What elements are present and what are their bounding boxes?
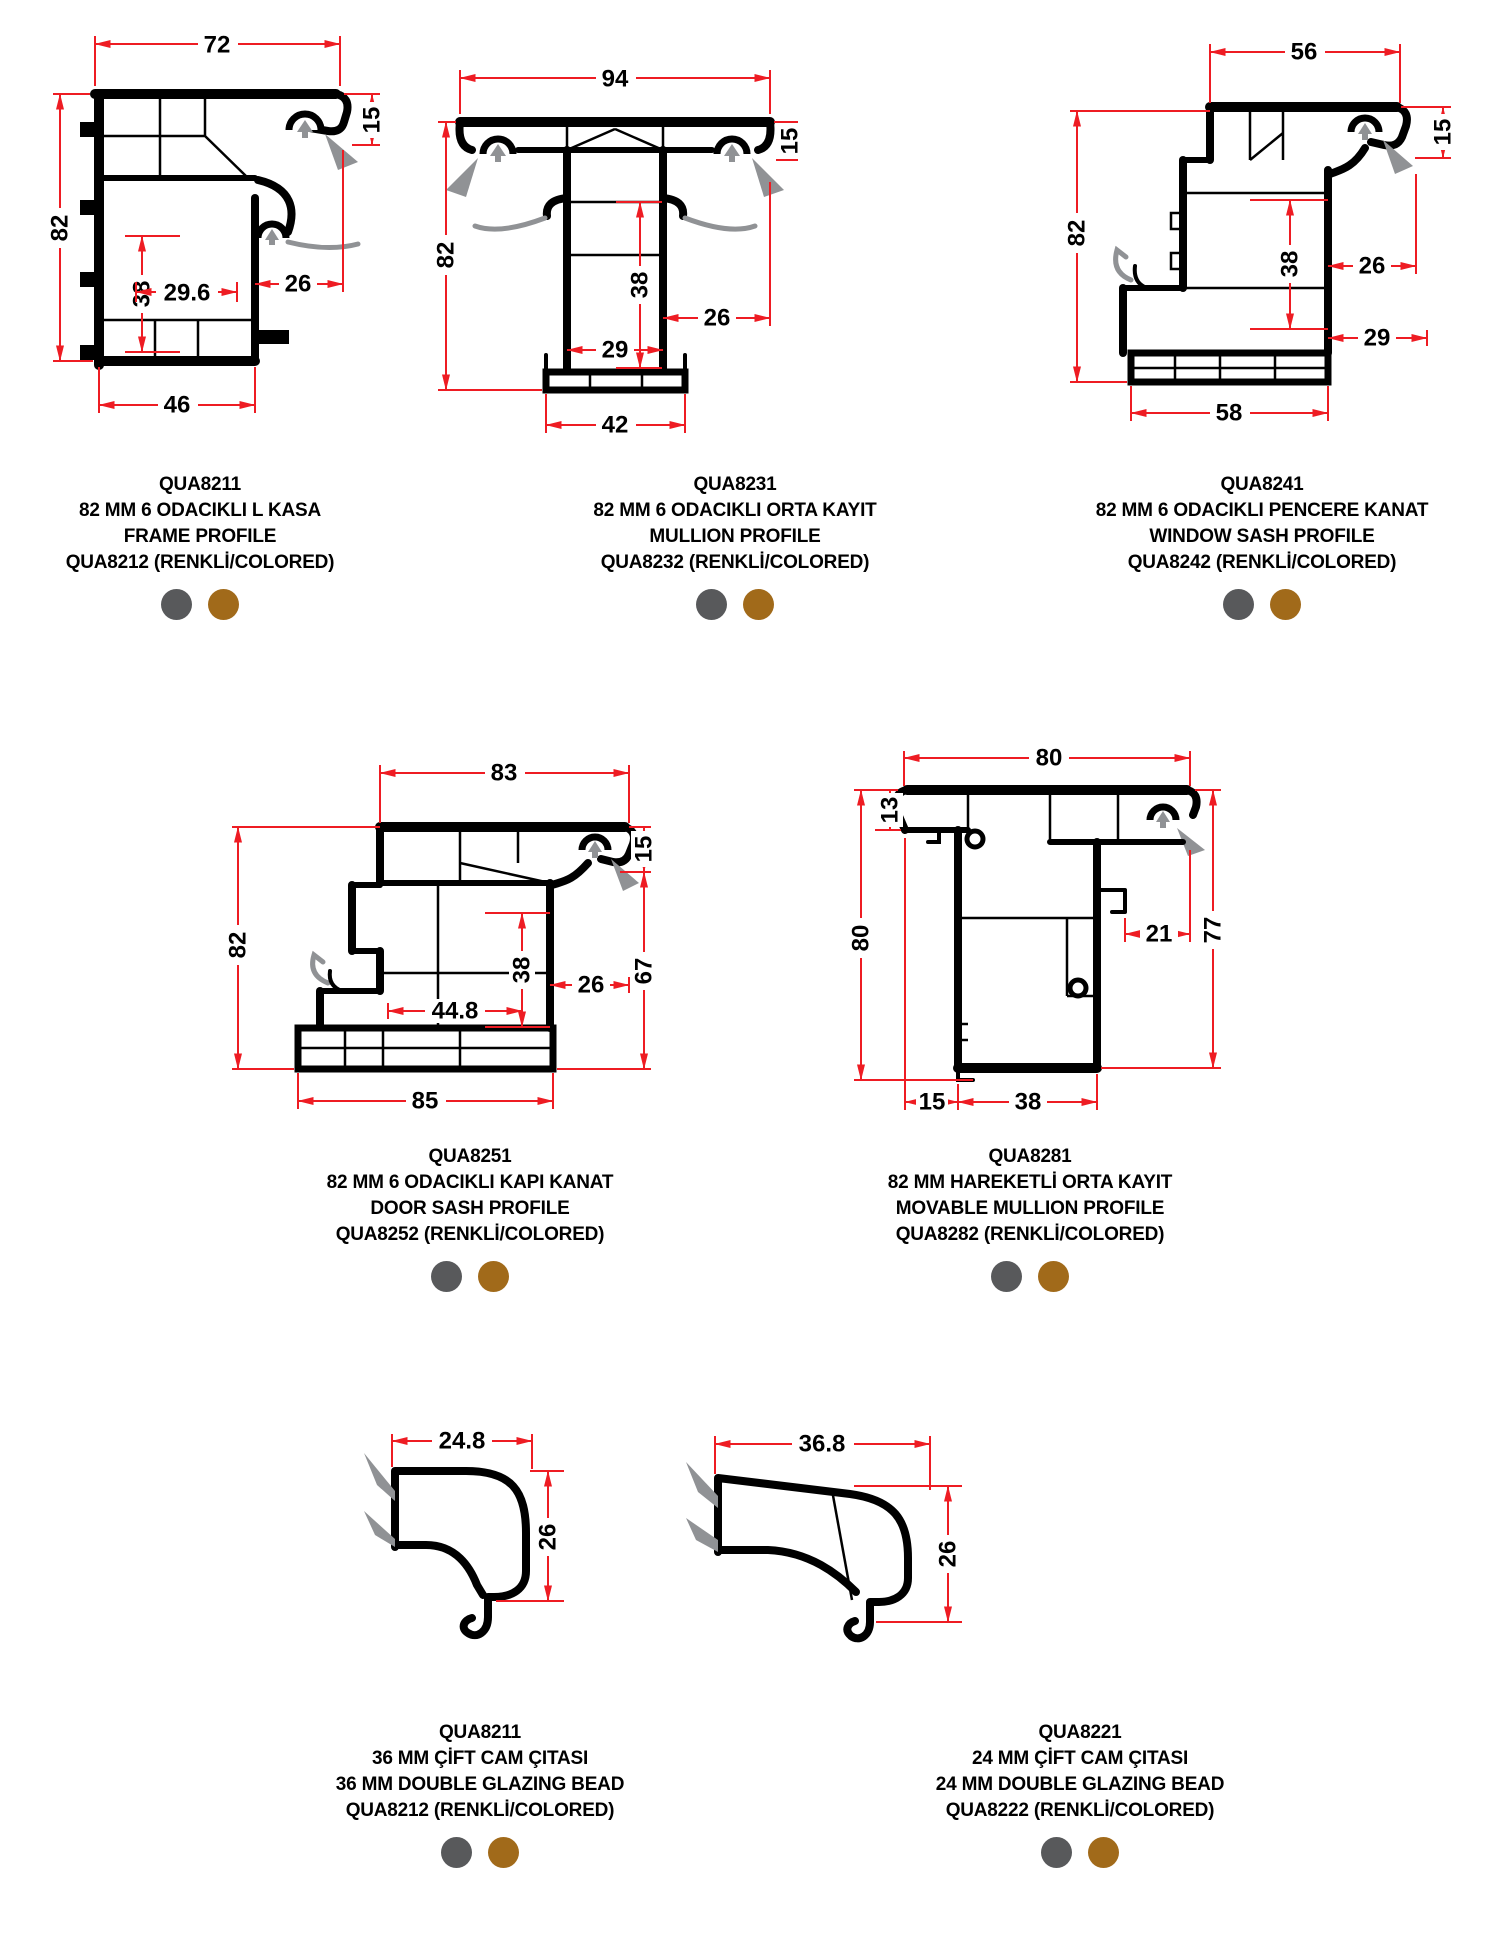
profile-code: QUA8231 [535, 472, 935, 498]
profile-drawing-window-sash: 56 82 15 38 29 26 58 [1035, 8, 1470, 448]
gasket-fin [364, 1453, 395, 1501]
dim-right: 26 [704, 305, 731, 332]
profile-caption-frame: QUA8211 82 MM 6 ODACIKLI L KASA FRAME PR… [0, 472, 400, 620]
dim-height-left: 80 [848, 925, 875, 952]
dim-right: 26 [285, 271, 312, 298]
dimension-lines: 80 13 80 21 77 15 38 [848, 745, 1227, 1116]
color-dot-gray [1041, 1837, 1072, 1868]
profile-colored-code: QUA8252 (RENKLİ/COLORED) [270, 1222, 670, 1248]
profile-caption-window-sash: QUA8241 82 MM 6 ODACIKLI PENCERE KANAT W… [1062, 472, 1462, 620]
dim-width-top: 56 [1291, 39, 1318, 66]
dim-width-top: 94 [602, 66, 629, 93]
dim-right-side: 67 [631, 958, 658, 985]
profile-caption-door-sash: QUA8251 82 MM 6 ODACIKLI KAPI KANAT DOOR… [270, 1144, 670, 1292]
profile-body [298, 827, 639, 1069]
profile-drawing-door-sash: 83 82 15 67 38 44.8 26 85 [220, 733, 665, 1148]
dim-mid-right: 21 [1146, 921, 1173, 948]
profile-name-tr: 82 MM 6 ODACIKLI ORTA KAYIT [535, 498, 935, 524]
dim-right-top: 15 [1430, 119, 1457, 146]
profile-name-tr: 82 MM 6 ODACIKLI PENCERE KANAT [1062, 498, 1462, 524]
gasket-wedge [325, 134, 358, 170]
profile-name-en: DOOR SASH PROFILE [270, 1196, 670, 1222]
profile-caption-bead-36: QUA8211 36 MM ÇİFT CAM ÇITASI 36 MM DOUB… [280, 1720, 680, 1868]
color-options [0, 589, 400, 620]
gasket-wedge [446, 158, 478, 197]
color-dot-brown [208, 589, 239, 620]
dim-width-top: 24.8 [439, 1428, 486, 1455]
dim-width-top: 83 [491, 760, 518, 787]
profile-name-tr: 36 MM ÇİFT CAM ÇITASI [280, 1746, 680, 1772]
profile-drawing-movable-mullion: 80 13 80 21 77 15 38 [835, 738, 1235, 1138]
color-options [270, 1261, 670, 1292]
dim-inner-h: 44.8 [432, 998, 479, 1025]
profile-drawing-mullion: 94 82 15 38 29 26 42 [430, 50, 820, 465]
dim-width-top: 80 [1036, 745, 1063, 772]
dim-right-top: 15 [777, 128, 804, 155]
profile-name-en: MULLION PROFILE [535, 524, 935, 550]
profile-name-en: FRAME PROFILE [0, 524, 400, 550]
profile-code: QUA8241 [1062, 472, 1462, 498]
dim-right-side: 77 [1200, 917, 1227, 944]
color-options [1062, 589, 1462, 620]
profile-name-en: 24 MM DOUBLE GLAZING BEAD [880, 1772, 1280, 1798]
dim-height-left: 82 [225, 932, 252, 959]
profile-code: QUA8251 [270, 1144, 670, 1170]
profile-drawing-glazing-bead-36: 24.8 26 [280, 1425, 580, 1715]
gasket-flipper [288, 242, 358, 248]
dim-height-right: 26 [535, 1524, 562, 1551]
dimension-lines: 24.8 26 [392, 1428, 564, 1602]
color-dot-brown [1038, 1261, 1069, 1292]
dim-height-left: 82 [47, 215, 74, 242]
dim-width-bottom: 38 [1015, 1089, 1042, 1116]
color-dot-gray [991, 1261, 1022, 1292]
dim-right-top: 15 [359, 107, 386, 134]
profile-name-tr: 82 MM HAREKETLİ ORTA KAYIT [830, 1170, 1230, 1196]
color-dot-brown [743, 589, 774, 620]
dim-width-top: 72 [204, 32, 231, 59]
color-options [535, 589, 935, 620]
color-dot-brown [1270, 589, 1301, 620]
profile-colored-code: QUA8222 (RENKLİ/COLORED) [880, 1798, 1280, 1824]
profile-drawing-frame: 72 82 15 38 29.6 26 46 [20, 10, 415, 430]
color-options [280, 1837, 680, 1868]
color-options [830, 1261, 1230, 1292]
dim-inner-v: 38 [627, 272, 654, 299]
profile-caption-bead-24: QUA8221 24 MM ÇİFT CAM ÇITASI 24 MM DOUB… [880, 1720, 1280, 1868]
color-dot-brown [488, 1837, 519, 1868]
color-dot-brown [478, 1261, 509, 1292]
gasket-hook [1116, 250, 1131, 280]
dim-inner-h: 29 [1364, 325, 1391, 352]
dim-inner-h: 29 [602, 337, 629, 364]
profile-code: QUA8211 [0, 472, 400, 498]
profile-colored-code: QUA8232 (RENKLİ/COLORED) [535, 550, 935, 576]
dim-inner-v: 38 [1277, 251, 1304, 278]
color-dot-brown [1088, 1837, 1119, 1868]
gasket-fin [686, 1518, 718, 1552]
profile-caption-movable-mullion: QUA8281 82 MM HAREKETLİ ORTA KAYIT MOVAB… [830, 1144, 1230, 1292]
profile-code: QUA8281 [830, 1144, 1230, 1170]
color-dot-gray [1223, 589, 1254, 620]
color-dot-gray [161, 589, 192, 620]
profile-name-tr: 24 MM ÇİFT CAM ÇITASI [880, 1746, 1280, 1772]
profile-colored-code: QUA8282 (RENKLİ/COLORED) [830, 1222, 1230, 1248]
profile-colored-code: QUA8212 (RENKLİ/COLORED) [0, 550, 400, 576]
dim-width-bottom: 85 [412, 1088, 439, 1115]
profile-code: QUA8211 [280, 1720, 680, 1746]
gasket-fin [364, 1511, 395, 1547]
dim-inner-v: 38 [509, 957, 536, 984]
dim-inner-h: 29.6 [164, 280, 211, 307]
gasket-hook [313, 955, 328, 983]
dim-height-left: 82 [1064, 220, 1091, 247]
profile-name-en: 36 MM DOUBLE GLAZING BEAD [280, 1772, 680, 1798]
dim-inner-v: 38 [129, 281, 156, 308]
gasket-wedge [752, 158, 784, 197]
dim-width-bottom: 46 [164, 392, 191, 419]
dim-right: 26 [578, 972, 605, 999]
profile-body [364, 1453, 526, 1635]
catalog-page: 72 82 15 38 29.6 26 46 [0, 0, 1488, 1935]
profile-drawing-glazing-bead-24: 36.8 26 [680, 1420, 1000, 1720]
color-options [880, 1837, 1280, 1868]
dim-height-right: 26 [935, 1541, 962, 1568]
dim-width-top: 36.8 [799, 1431, 846, 1458]
profile-name-tr: 82 MM 6 ODACIKLI KAPI KANAT [270, 1170, 670, 1196]
dim-right-top: 15 [631, 836, 658, 863]
profile-colored-code: QUA8242 (RENKLİ/COLORED) [1062, 550, 1462, 576]
profile-body [686, 1462, 908, 1638]
color-dot-gray [441, 1837, 472, 1868]
dim-left-top: 13 [877, 797, 904, 824]
dim-width-bottom: 58 [1216, 400, 1243, 427]
profile-name-tr: 82 MM 6 ODACIKLI L KASA [0, 498, 400, 524]
color-dot-gray [696, 589, 727, 620]
dim-height-left: 82 [433, 242, 460, 269]
dim-right: 26 [1359, 253, 1386, 280]
profile-name-en: MOVABLE MULLION PROFILE [830, 1196, 1230, 1222]
profile-colored-code: QUA8212 (RENKLİ/COLORED) [280, 1798, 680, 1824]
color-dot-gray [431, 1261, 462, 1292]
profile-name-en: WINDOW SASH PROFILE [1062, 524, 1462, 550]
profile-code: QUA8221 [880, 1720, 1280, 1746]
profile-caption-mullion: QUA8231 82 MM 6 ODACIKLI ORTA KAYIT MULL… [535, 472, 935, 620]
dim-bottom-left: 15 [919, 1089, 946, 1116]
gasket-fin [686, 1462, 718, 1508]
gasket-flipper [475, 218, 755, 229]
dim-width-bottom: 42 [602, 412, 629, 439]
profile-body [80, 94, 358, 365]
